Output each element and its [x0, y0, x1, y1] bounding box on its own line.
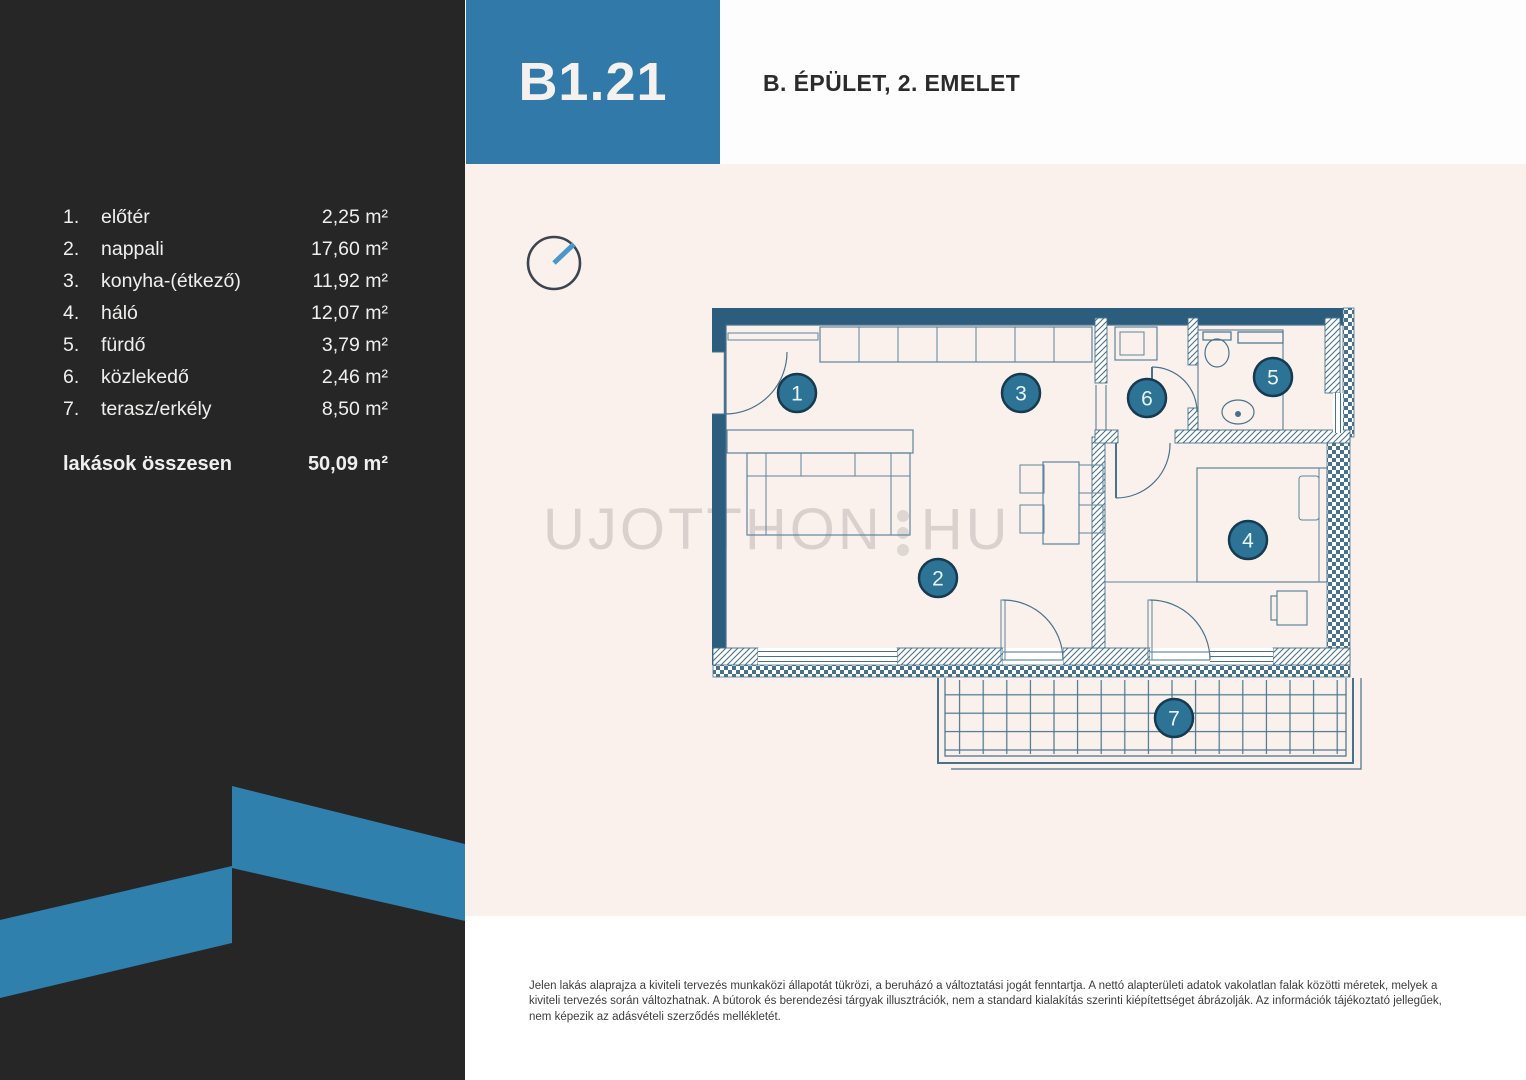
accent-band-left: [0, 866, 232, 998]
building-floor-title: B. ÉPÜLET, 2. EMELET: [763, 70, 1020, 97]
room-marker-5: 5: [1254, 358, 1292, 396]
room-label: háló: [101, 302, 311, 325]
bed: [1105, 468, 1327, 582]
room-number: 6.: [63, 366, 101, 389]
room-list: 1. előtér 2,25 m² 2. nappali 17,60 m² 3.…: [63, 206, 388, 476]
bottom-wall: [713, 648, 1350, 677]
accent-band-right: [232, 786, 465, 921]
room-area: 17,60 m²: [311, 238, 388, 261]
room-number: 7.: [63, 398, 101, 421]
bath-shelf: [1238, 332, 1283, 343]
room-row-7: 7. terasz/erkély 8,50 m²: [63, 398, 388, 430]
room-row-6: 6. közlekedő 2,46 m²: [63, 366, 388, 398]
footer: Jelen lakás alaprajza a kiviteli tervezé…: [465, 916, 1526, 1080]
total-area: 50,09 m²: [308, 453, 388, 476]
dining-set: [1020, 462, 1103, 544]
panel-accent-shapes: [0, 0, 465, 1080]
room-area: 11,92 m²: [312, 270, 388, 293]
room-label: előtér: [101, 206, 322, 229]
room-label: közlekedő: [101, 366, 322, 389]
room-area: 2,25 m²: [322, 206, 388, 229]
room-number: 2.: [63, 238, 101, 261]
svg-text:7: 7: [1168, 708, 1180, 731]
room-number: 1.: [63, 206, 101, 229]
unit-code-box: B1.21: [466, 0, 720, 164]
room-area: 8,50 m²: [322, 398, 388, 421]
sofa: [727, 430, 913, 535]
inner-wall-face: [726, 325, 1343, 648]
svg-text:3: 3: [1015, 383, 1027, 406]
svg-text:6: 6: [1141, 388, 1153, 411]
room-row-2: 2. nappali 17,60 m²: [63, 238, 388, 270]
room-number: 5.: [63, 334, 101, 357]
room-area: 3,79 m²: [322, 334, 388, 357]
total-label: lakások összesen: [63, 453, 308, 476]
total-row: lakások összesen 50,09 m²: [63, 453, 388, 476]
north-compass-icon: [524, 233, 584, 293]
room-row-5: 5. fürdő 3,79 m²: [63, 334, 388, 366]
svg-text:2: 2: [932, 568, 944, 591]
interior-walls: [1092, 318, 1350, 648]
floor-plan: 1 2 3 4 5 6 7: [700, 290, 1410, 790]
room-marker-2: 2: [919, 559, 957, 597]
room-marker-4: 4: [1229, 521, 1267, 559]
room-label: nappali: [101, 238, 311, 261]
room-marker-3: 3: [1002, 374, 1040, 412]
room-row-1: 1. előtér 2,25 m²: [63, 206, 388, 238]
door-arc: [725, 352, 787, 414]
balcony-tiles: [945, 680, 1346, 754]
room-number: 4.: [63, 302, 101, 325]
svg-text:5: 5: [1267, 367, 1279, 390]
room-row-3: 3. konyha-(étkező) 11,92 m²: [63, 270, 388, 302]
room-row-4: 4. háló 12,07 m²: [63, 302, 388, 334]
room-label: konyha-(étkező): [101, 270, 312, 293]
left-panel: 1. előtér 2,25 m² 2. nappali 17,60 m² 3.…: [0, 0, 465, 1080]
kitchen-cabinets: [728, 327, 1092, 362]
svg-text:1: 1: [791, 383, 803, 406]
room-label: fürdő: [101, 334, 322, 357]
room-label: terasz/erkély: [101, 398, 322, 421]
svg-text:4: 4: [1242, 530, 1254, 553]
room-marker-7: 7: [1155, 699, 1193, 737]
unit-code: B1.21: [518, 51, 667, 113]
desk-chair: [1271, 591, 1307, 625]
toilet-icon: [1205, 339, 1229, 367]
disclaimer-text: Jelen lakás alaprajza a kiviteli tervezé…: [529, 979, 1451, 1025]
entry-door: [712, 352, 787, 414]
balcony: [938, 678, 1361, 769]
room-marker-6: 6: [1128, 379, 1166, 417]
compass-needle: [554, 244, 574, 263]
pillow: [1299, 476, 1319, 520]
room-area: 2,46 m²: [322, 366, 388, 389]
bedroom-door-arc: [1116, 443, 1170, 498]
room-marker-1: 1: [778, 374, 816, 412]
hall-closet: [1115, 327, 1157, 360]
room-number: 3.: [63, 270, 101, 293]
room-area: 12,07 m²: [311, 302, 388, 325]
